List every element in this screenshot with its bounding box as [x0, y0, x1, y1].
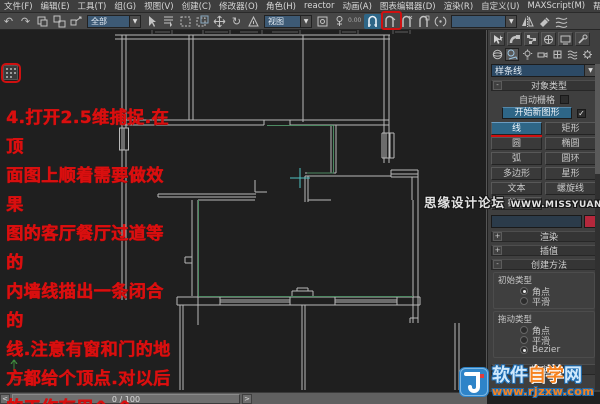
- rjzxw-site-part3: 网: [564, 365, 582, 386]
- radio-drag-smooth[interactable]: 平滑: [494, 335, 594, 345]
- missyuan-site-text: 思缘设计论坛: [424, 195, 505, 210]
- panel-scrollbar[interactable]: [595, 64, 600, 390]
- rollout-title: 创建方法: [502, 258, 596, 271]
- category-cameras-icon[interactable]: [535, 48, 549, 61]
- menu-views[interactable]: 视图(V): [144, 0, 173, 12]
- rollout-title: 对象类型: [502, 79, 596, 92]
- next-frame-button[interactable]: >: [242, 394, 252, 404]
- select-and-link-icon[interactable]: [34, 14, 51, 29]
- rollout-title: 渲染: [502, 230, 596, 243]
- category-shapes-icon[interactable]: [505, 48, 519, 61]
- expand-icon[interactable]: +: [493, 232, 502, 241]
- radio-initial-smooth[interactable]: 平滑: [494, 296, 594, 306]
- menu-file[interactable]: 文件(F): [4, 0, 33, 12]
- radio-icon[interactable]: [520, 287, 528, 295]
- collapse-icon[interactable]: -: [493, 260, 502, 269]
- menu-bar: 文件(F) 编辑(E) 工具(T) 组(G) 视图(V) 创建(C) 修改器(O…: [0, 0, 600, 13]
- select-and-move-icon[interactable]: [211, 14, 228, 29]
- menu-rendering[interactable]: 渲染(R): [444, 0, 474, 12]
- undo-icon[interactable]: ↶: [0, 14, 17, 29]
- rjzxw-site-part2: 自学: [528, 365, 564, 386]
- start-new-shape-row: 开始新图形 ✓: [488, 107, 600, 119]
- traced-spline: [199, 126, 414, 297]
- button-line[interactable]: 线: [491, 122, 542, 135]
- spinner-snap-value: 0.00: [348, 18, 361, 24]
- window-crossing-icon[interactable]: [194, 14, 211, 29]
- autogrid-checkbox[interactable]: [560, 95, 569, 104]
- menu-create[interactable]: 创建(C): [182, 0, 212, 12]
- start-new-shape-checkbox[interactable]: ✓: [577, 109, 586, 118]
- tab-create-icon[interactable]: [490, 32, 505, 46]
- start-new-shape-button[interactable]: 开始新图形: [502, 107, 572, 119]
- menu-customize[interactable]: 自定义(U): [481, 0, 519, 12]
- expand-icon[interactable]: +: [493, 246, 502, 255]
- menu-graph-editors[interactable]: 图表编辑器(D): [380, 0, 436, 12]
- category-systems-icon[interactable]: [580, 48, 594, 61]
- bind-to-space-warp-icon[interactable]: [68, 14, 85, 29]
- tab-hierarchy-icon[interactable]: [524, 32, 539, 46]
- button-ellipse[interactable]: 椭圆: [545, 137, 596, 150]
- dropdown-arrow-icon[interactable]: ▼: [129, 16, 140, 27]
- tab-motion-icon[interactable]: [541, 32, 556, 46]
- category-geometry-icon[interactable]: [490, 48, 504, 61]
- percent-snap-toggle-icon[interactable]: [398, 14, 415, 29]
- button-ngon[interactable]: 多边形: [491, 167, 542, 180]
- shape-category-dropdown[interactable]: 样条线 ▼: [491, 64, 597, 77]
- edit-named-selection-sets-icon[interactable]: [432, 14, 449, 29]
- command-panel: 样条线 ▼ - 对象类型 自动栅格 开始新图形 ✓ 线 矩形 圆 椭圆 弧 圆环…: [488, 30, 600, 392]
- coord-system-value: 视图: [265, 16, 300, 27]
- use-pivot-point-center-icon[interactable]: [314, 14, 331, 29]
- menu-tools[interactable]: 工具(T): [78, 0, 107, 12]
- radio-icon[interactable]: [520, 346, 528, 354]
- annotation-line: 线.注意有窗和门的地: [6, 336, 176, 365]
- panel-category-tabs: [488, 47, 600, 62]
- collapse-icon[interactable]: -: [493, 81, 502, 90]
- radio-icon[interactable]: [520, 336, 528, 344]
- shape-category-value: 样条线: [492, 64, 584, 77]
- menu-maxscript[interactable]: MAXScript(M): [528, 1, 586, 11]
- dropdown-arrow-icon[interactable]: ▼: [505, 16, 516, 27]
- annotation-line: 4.打开2.5维捕捉.在顶: [6, 104, 176, 162]
- redo-icon[interactable]: ↷: [17, 14, 34, 29]
- select-object-icon[interactable]: [143, 14, 160, 29]
- select-and-manipulate-icon[interactable]: [331, 14, 348, 29]
- button-rectangle[interactable]: 矩形: [545, 122, 596, 135]
- missyuan-watermark: 思缘设计论坛 WWW.MISSYUAN.COM: [424, 192, 600, 211]
- radio-label: Bezier: [532, 345, 560, 355]
- rjzxw-logo-icon: [459, 367, 489, 397]
- autogrid-label: 自动栅格: [519, 93, 555, 106]
- select-and-rotate-icon[interactable]: ↻: [228, 14, 245, 29]
- button-label: 线: [512, 124, 521, 134]
- selection-filter-value: 全部: [88, 16, 129, 27]
- rollout-creation-method[interactable]: - 创建方法: [491, 259, 597, 270]
- spinner-snap-toggle-icon[interactable]: [415, 14, 432, 29]
- missyuan-url-text: WWW.MISSYUAN.COM: [511, 200, 600, 210]
- tab-display-icon[interactable]: [558, 32, 573, 46]
- menu-modifiers[interactable]: 修改器(O): [219, 0, 258, 12]
- drag-type-group: 拖动类型 角点 平滑 Bezier: [493, 311, 595, 358]
- align-icon[interactable]: [536, 14, 553, 29]
- menu-edit[interactable]: 编辑(E): [41, 0, 70, 12]
- category-lights-icon[interactable]: [520, 48, 534, 61]
- rollout-title: 插值: [502, 244, 596, 257]
- annotation-line: 图的客厅餐厅过道等的: [6, 220, 176, 278]
- unlink-selection-icon[interactable]: [51, 14, 68, 29]
- category-helpers-icon[interactable]: [550, 48, 564, 61]
- rollout-object-type[interactable]: - 对象类型: [491, 80, 597, 91]
- selection-filter-dropdown[interactable]: 全部 ▼: [87, 15, 141, 28]
- snap-cursor-crosshair: [290, 168, 310, 188]
- annotation-line: 方都给个顶点.对以后: [6, 365, 176, 394]
- rjzxw-text: 软件自学网 www.rjzxw.com: [492, 366, 594, 398]
- object-name-field[interactable]: [491, 215, 582, 228]
- button-arc[interactable]: 弧: [491, 152, 542, 165]
- 3dsmax-window: 文件(F) 编辑(E) 工具(T) 组(G) 视图(V) 创建(C) 修改器(O…: [0, 0, 600, 404]
- scrollbar-thumb[interactable]: [595, 64, 600, 174]
- autogrid-row: 自动栅格: [488, 94, 600, 105]
- rjzxw-watermark: 软件自学网 www.rjzxw.com: [459, 360, 600, 404]
- radio-drag-bezier[interactable]: Bezier: [494, 345, 594, 355]
- mirror-icon[interactable]: [519, 14, 536, 29]
- menu-group[interactable]: 组(G): [114, 0, 136, 12]
- button-star[interactable]: 星形: [545, 167, 596, 180]
- radio-label: 平滑: [532, 295, 550, 308]
- initial-type-group: 初始类型 角点 平滑: [493, 272, 595, 309]
- menu-reactor[interactable]: reactor: [304, 1, 334, 11]
- panel-tabs: [488, 30, 600, 47]
- viewport-snap-indicator-icon[interactable]: [3, 65, 18, 80]
- name-and-color-row: [491, 215, 597, 228]
- tab-modify-icon[interactable]: [507, 32, 522, 46]
- main-toolbar: ↶ ↷ 全部 ▼ ↻: [0, 13, 600, 30]
- radio-icon[interactable]: [520, 297, 528, 305]
- annotation-line: 内墙线描出一条闭合的: [6, 278, 176, 336]
- button-circle[interactable]: 圆: [491, 137, 542, 150]
- rectangular-selection-region-icon[interactable]: [177, 14, 194, 29]
- annotation-line: 的工作有用^_^: [6, 394, 176, 404]
- tutorial-annotation-text: 4.打开2.5维捕捉.在顶 面图上顺着需要做效果 图的客厅餐厅过道等的 内墙线描…: [6, 104, 176, 404]
- menu-help[interactable]: 帮助(H): [593, 0, 600, 12]
- snaps-toggle-25d-icon[interactable]: [364, 14, 381, 29]
- angle-snap-toggle-icon[interactable]: [381, 14, 398, 29]
- rjzxw-site-part1: 软件: [492, 365, 528, 386]
- tab-utilities-icon[interactable]: [575, 32, 590, 46]
- named-selection-sets-dropdown[interactable]: ▼: [451, 15, 517, 28]
- select-by-name-icon[interactable]: [160, 14, 177, 29]
- reference-coordinate-system-dropdown[interactable]: 视图 ▼: [264, 15, 312, 28]
- rjzxw-url-text: www.rjzxw.com: [492, 385, 594, 398]
- menu-character[interactable]: 角色(H): [266, 0, 296, 12]
- curve-editor-icon[interactable]: [553, 14, 570, 29]
- menu-animation[interactable]: 动画(A): [342, 0, 371, 12]
- radio-icon[interactable]: [520, 326, 528, 334]
- top-viewport[interactable]: 4.打开2.5维捕捉.在顶 面图上顺着需要做效果 图的客厅餐厅过道等的 内墙线描…: [0, 30, 487, 392]
- category-spacewarps-icon[interactable]: [565, 48, 579, 61]
- annotation-line: 面图上顺着需要做效果: [6, 162, 176, 220]
- select-and-scale-icon[interactable]: [245, 14, 262, 29]
- rollout-rendering[interactable]: + 渲染: [491, 231, 597, 242]
- rollout-interpolation[interactable]: + 插值: [491, 245, 597, 256]
- button-donut[interactable]: 圆环: [545, 152, 596, 165]
- dropdown-arrow-icon[interactable]: ▼: [300, 16, 311, 27]
